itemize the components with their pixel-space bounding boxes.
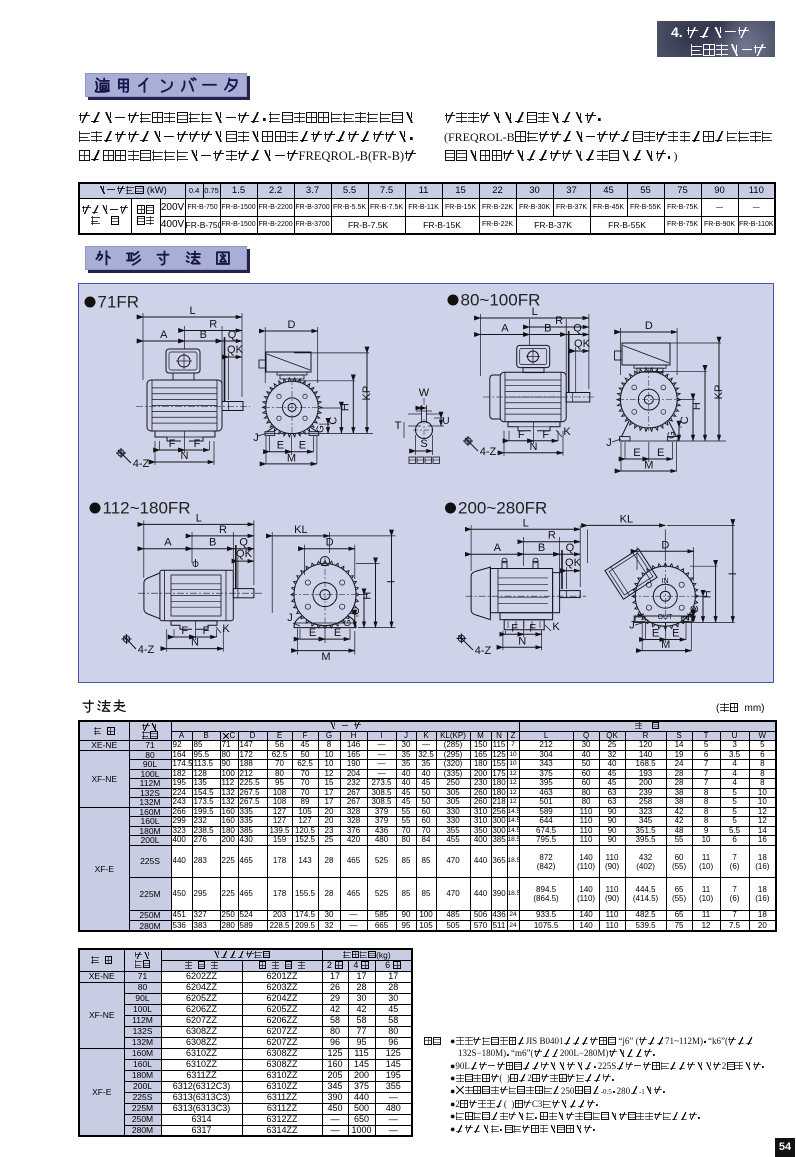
svg-text:A: A — [501, 323, 509, 335]
svg-text:112~180FR: 112~180FR — [103, 499, 191, 518]
svg-text:T: T — [395, 420, 402, 432]
svg-text:S: S — [420, 438, 427, 450]
svg-text:J: J — [253, 432, 259, 444]
svg-text:L: L — [196, 512, 202, 524]
svg-text:B: B — [538, 542, 545, 554]
svg-text:K: K — [563, 426, 571, 438]
svg-text:A: A — [160, 329, 168, 341]
svg-text:C: C — [350, 607, 362, 615]
svg-text:G: G — [667, 431, 678, 439]
svg-text:Q: Q — [566, 542, 575, 554]
svg-text:G: G — [342, 619, 352, 626]
svg-text:4-Z: 4-Z — [133, 458, 150, 470]
svg-text:K: K — [222, 623, 230, 635]
svg-text:C: C — [327, 417, 339, 425]
svg-text:L: L — [189, 305, 195, 317]
svg-text:E: E — [334, 627, 341, 639]
svg-text:R: R — [219, 524, 227, 536]
svg-text:200~280FR: 200~280FR — [458, 499, 547, 518]
svg-text:J: J — [629, 620, 635, 632]
svg-text:R: R — [548, 530, 556, 542]
svg-text:F: F — [542, 429, 549, 441]
svg-text:KL: KL — [620, 513, 633, 525]
svg-text:KP: KP — [361, 386, 373, 401]
svg-text:D: D — [287, 319, 295, 331]
svg-text:M: M — [661, 639, 670, 651]
svg-text:IN: IN — [662, 578, 669, 585]
svg-text:J: J — [287, 612, 293, 624]
svg-text:C: C — [679, 416, 691, 424]
svg-text:I: I — [386, 580, 398, 583]
svg-text:K: K — [552, 621, 560, 633]
svg-text:D: D — [326, 537, 334, 549]
svg-text:E: E — [309, 627, 316, 639]
svg-text:N: N — [181, 450, 189, 462]
svg-text:E: E — [672, 628, 679, 640]
svg-text:4-Z: 4-Z — [480, 446, 497, 458]
svg-text:4-Z: 4-Z — [138, 644, 155, 656]
svg-text:M: M — [644, 460, 653, 472]
svg-text:I: I — [727, 572, 739, 575]
svg-text:B: B — [209, 537, 216, 549]
svg-text:A: A — [494, 542, 502, 554]
svg-text:B: B — [544, 323, 551, 335]
svg-text:M: M — [321, 651, 330, 663]
svg-text:L: L — [532, 306, 538, 318]
svg-text:G: G — [681, 615, 691, 622]
svg-text:N: N — [530, 441, 538, 453]
svg-text:F: F — [518, 429, 525, 441]
svg-text:C: C — [689, 605, 701, 613]
svg-text:H: H — [362, 592, 374, 600]
svg-text:Q: Q — [228, 329, 237, 341]
svg-text:E: E — [277, 440, 284, 452]
svg-text:R: R — [555, 315, 563, 327]
svg-text:D: D — [645, 320, 653, 332]
svg-text:E: E — [657, 447, 664, 459]
svg-text:KP: KP — [713, 385, 725, 400]
svg-text:QK: QK — [574, 338, 591, 350]
svg-text:QK: QK — [236, 548, 253, 560]
svg-text:F: F — [529, 622, 536, 634]
svg-text:F: F — [194, 438, 201, 450]
svg-text:D: D — [661, 539, 669, 551]
svg-text:OUT: OUT — [658, 614, 674, 621]
svg-text:N: N — [191, 637, 199, 649]
svg-text:QK: QK — [227, 344, 244, 356]
svg-text:G: G — [316, 425, 327, 433]
svg-text:B: B — [200, 329, 207, 341]
svg-text:80~100FR: 80~100FR — [461, 291, 541, 310]
svg-text:Q: Q — [573, 323, 582, 335]
svg-text:Q: Q — [239, 537, 248, 549]
svg-text:U: U — [442, 416, 449, 427]
svg-text:KL: KL — [294, 524, 307, 536]
svg-text:N: N — [518, 635, 526, 647]
svg-text:L: L — [523, 517, 529, 529]
svg-text:E: E — [652, 628, 659, 640]
svg-text:F: F — [169, 438, 176, 450]
svg-text:J: J — [606, 437, 612, 449]
svg-text:M: M — [287, 453, 296, 465]
svg-text:E: E — [633, 447, 640, 459]
svg-text:QK: QK — [565, 557, 582, 569]
svg-text:71FR: 71FR — [98, 293, 140, 312]
svg-text:F: F — [181, 625, 188, 637]
svg-text:R: R — [209, 319, 217, 331]
svg-text:A: A — [164, 537, 172, 549]
svg-text:W: W — [419, 387, 430, 399]
svg-text:E: E — [299, 440, 306, 452]
svg-text:F: F — [511, 622, 518, 634]
svg-text:F: F — [203, 625, 210, 637]
svg-text:4-Z: 4-Z — [475, 645, 492, 657]
